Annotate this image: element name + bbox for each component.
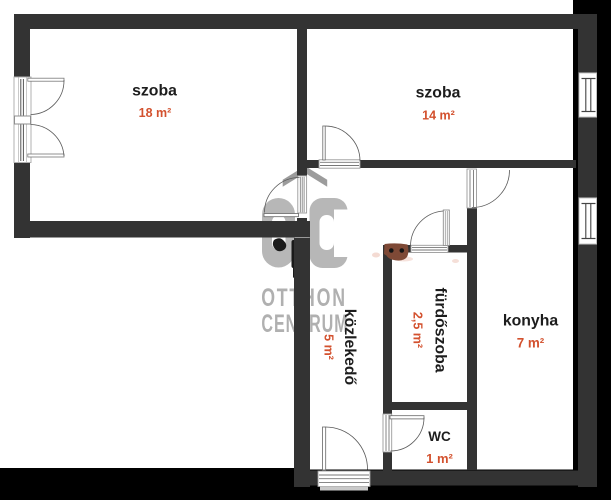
svg-text:18 m²: 18 m²	[139, 106, 172, 120]
svg-text:szoba: szoba	[416, 85, 461, 102]
svg-text:WC: WC	[428, 429, 451, 444]
svg-text:1 m²: 1 m²	[426, 451, 453, 466]
svg-text:közlekedő: közlekedő	[341, 309, 358, 386]
svg-text:2,5 m²: 2,5 m²	[411, 312, 425, 348]
svg-text:7 m²: 7 m²	[517, 335, 545, 350]
svg-text:szoba: szoba	[132, 83, 177, 100]
svg-text:fürdőszoba: fürdőszoba	[432, 287, 449, 372]
svg-text:konyha: konyha	[503, 313, 559, 330]
svg-text:5 m²: 5 m²	[322, 334, 336, 360]
svg-text:14 m²: 14 m²	[422, 109, 455, 123]
